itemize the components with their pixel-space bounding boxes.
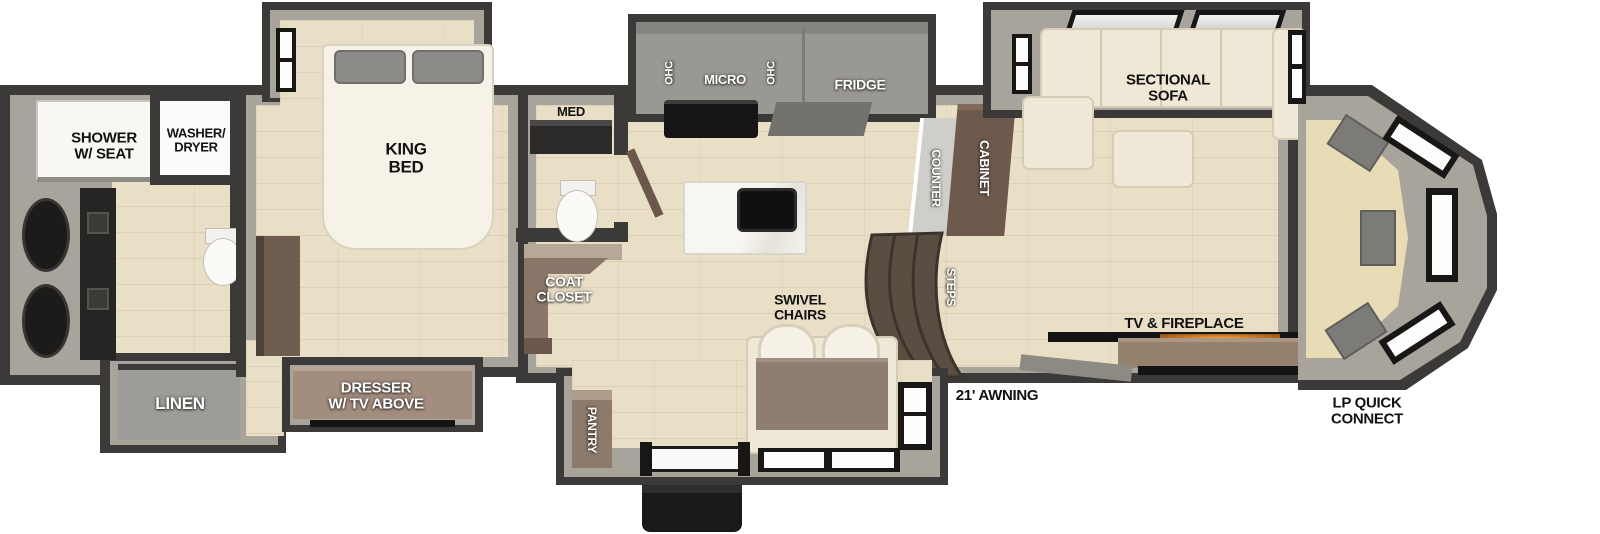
- vanity-sink-2: [22, 284, 70, 358]
- rv-floorplan: SHOWER W/ SEAT WASHER/ DRYER LINEN KING …: [0, 0, 1600, 534]
- label-pantry: PANTRY: [586, 407, 598, 453]
- vanity-basin-2: [87, 288, 109, 310]
- vanity-sink-1: [22, 198, 70, 272]
- coat-closet-top: [524, 244, 622, 260]
- med-room-right-wall-lower: [614, 222, 628, 242]
- entry-door-post-left: [640, 442, 652, 476]
- label-dresser: DRESSER W/ TV ABOVE: [328, 380, 423, 411]
- sofa-left-chaise: [1022, 96, 1094, 170]
- range-hood: [768, 102, 872, 136]
- med-cabinet: [530, 120, 612, 154]
- entry-side-window: [758, 448, 900, 472]
- coat-closet-base: [524, 338, 552, 354]
- kitchen-counter-seam: [802, 26, 805, 112]
- bay-window-middle-glass: [1432, 195, 1452, 275]
- label-ohc-right: OHC: [766, 61, 777, 85]
- living-slide-right-window: [1288, 30, 1306, 104]
- bay-cushion-middle: [1361, 211, 1395, 265]
- label-king-bed: KING BED: [385, 140, 426, 175]
- label-coat-closet: COAT CLOSET: [537, 274, 592, 303]
- label-fridge: FRIDGE: [834, 78, 885, 93]
- label-awning: 21' AWNING: [956, 388, 1039, 404]
- label-sectional-sofa: SECTIONAL SOFA: [1126, 72, 1210, 103]
- sofa-ottoman: [1112, 130, 1194, 188]
- pantry-slide-end-window: [898, 382, 932, 450]
- label-ohc-left: OHC: [664, 61, 675, 85]
- bedroom-wardrobe: [256, 236, 300, 356]
- swivel-chair-table: [756, 358, 888, 430]
- label-cabinet: CABINET: [977, 140, 991, 196]
- bed-pillow-right: [412, 50, 484, 84]
- island-sink: [737, 188, 797, 232]
- bed-pillow-left: [334, 50, 406, 84]
- label-washer-dryer: WASHER/ DRYER: [167, 126, 226, 153]
- label-shower: SHOWER W/ SEAT: [71, 130, 137, 161]
- label-swivel-chairs: SWIVEL CHAIRS: [774, 292, 826, 321]
- bedroom-window: [276, 28, 296, 92]
- dresser-tv: [310, 420, 455, 427]
- rear-bay: [1280, 75, 1500, 395]
- label-tv-fireplace: TV & FIREPLACE: [1124, 316, 1243, 332]
- entry-exterior-steps: [642, 485, 742, 532]
- label-lp-quick-connect: LP QUICK CONNECT: [1331, 395, 1403, 426]
- med-toilet: [556, 190, 598, 242]
- range: [664, 100, 758, 138]
- label-linen: LINEN: [155, 395, 205, 413]
- living-slide-left-window: [1012, 34, 1032, 94]
- label-micro: MICRO: [704, 73, 746, 87]
- label-steps: STEPS: [945, 268, 957, 306]
- entry-door: [648, 446, 742, 472]
- vanity-basin-1: [87, 212, 109, 234]
- entry-door-post-right: [738, 442, 750, 476]
- med-room-right-wall-upper: [614, 85, 628, 155]
- label-med: MED: [557, 105, 585, 119]
- label-counter: COUNTER: [930, 149, 942, 206]
